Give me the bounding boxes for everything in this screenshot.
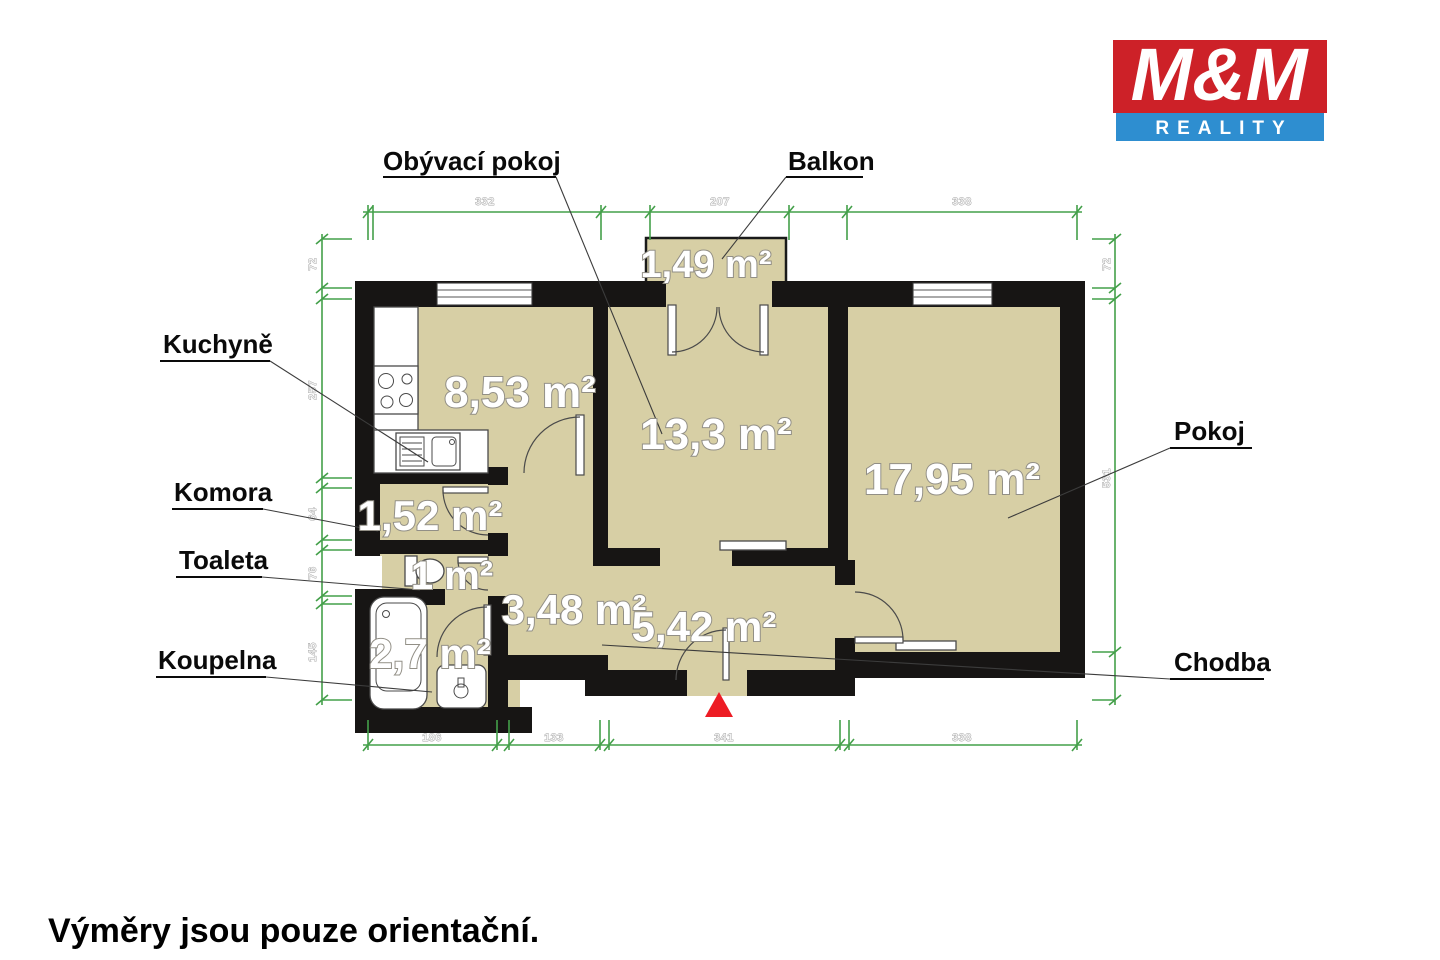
area-chodba-stred: 3,48 m² [502, 586, 647, 633]
room-chodba-stred [500, 455, 608, 665]
pokoj-door-opening [835, 585, 855, 638]
area-komora: 1,52 m² [358, 492, 503, 539]
logo-name: M&M [1131, 33, 1309, 116]
area-balkon: 1,49 m² [641, 244, 772, 286]
label-toaleta: Toaleta [179, 545, 269, 575]
shelf [720, 541, 786, 550]
kitchen-window [437, 283, 532, 305]
area-koupelna: 2,7 m² [369, 630, 490, 677]
area-kuchyne: 8,53 m² [444, 368, 596, 417]
dim-right-2: 531 [1101, 468, 1113, 488]
entrance-opening [687, 670, 747, 696]
label-balkon: Balkon [788, 146, 875, 176]
label-obyvaci-pokoj: Obývací pokoj [383, 146, 561, 176]
dim-top-2: 207 [710, 196, 730, 208]
label-koupelna: Koupelna [158, 645, 277, 675]
logo-tagline: REALITY [1155, 118, 1292, 139]
dim-top-3: 338 [952, 196, 972, 208]
dim-bottom-4: 338 [952, 732, 972, 744]
floor-plan-page: 332 207 338 186 133 341 338 72 257 64 76… [0, 0, 1440, 960]
dim-bottom-2: 133 [544, 732, 564, 744]
label-kuchyne: Kuchyně [163, 329, 273, 359]
area-pokoj: 17,95 m² [864, 455, 1040, 504]
area-toaleta: 1 m² [411, 554, 493, 598]
dim-bottom-3: 341 [714, 732, 734, 744]
label-pokoj: Pokoj [1174, 416, 1245, 446]
area-obyvaci-pokoj: 13,3 m² [640, 410, 792, 459]
pokoj-window [913, 283, 992, 305]
kitchen-hob-icon [374, 366, 418, 414]
dim-left-2: 257 [307, 380, 319, 400]
kitchen-sink-icon [396, 433, 460, 470]
area-chodba: 5,42 m² [632, 603, 777, 650]
living-pass-opening [660, 548, 732, 566]
dim-top-1: 332 [475, 196, 495, 208]
radiator [896, 641, 956, 650]
disclaimer-text: Výměry jsou pouze orientační. [48, 912, 539, 950]
label-komora: Komora [174, 477, 273, 507]
dim-right-1: 72 [1101, 257, 1113, 270]
label-chodba: Chodba [1174, 647, 1271, 677]
floor-plan-drawing: 332 207 338 186 133 341 338 72 257 64 76… [0, 0, 1440, 960]
logo: M&M REALITY [1113, 33, 1327, 141]
wall-niche [352, 556, 382, 589]
dim-bottom-1: 186 [422, 732, 442, 744]
dim-left-4: 76 [307, 566, 319, 579]
dim-left-5: 145 [307, 642, 319, 662]
dim-left-1: 72 [307, 257, 319, 270]
